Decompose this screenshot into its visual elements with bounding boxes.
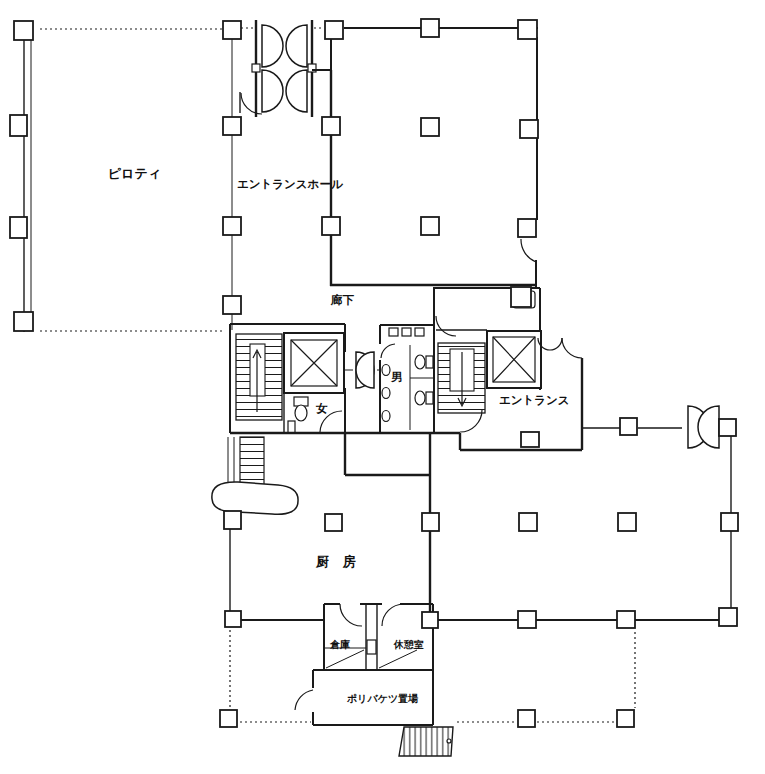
column xyxy=(421,118,439,136)
bucket-door-arc xyxy=(295,690,313,710)
stair-east xyxy=(438,343,485,413)
entrance-step-block xyxy=(521,432,539,447)
column xyxy=(14,312,33,331)
column xyxy=(223,296,241,314)
column xyxy=(618,513,636,531)
column xyxy=(721,513,738,531)
vestibule-door-leaf-icon xyxy=(286,25,307,67)
elevator-west xyxy=(284,333,344,393)
stair-handrail-post xyxy=(447,739,451,743)
column xyxy=(520,120,538,138)
column xyxy=(518,611,536,628)
stair-treads xyxy=(399,727,453,756)
label-storage: 倉庫 xyxy=(329,639,350,650)
wc-door-swing-arc xyxy=(381,344,395,358)
breakroom-door-arc xyxy=(382,604,404,626)
piloti-area: ピロティ xyxy=(24,29,232,332)
label-kitchen: 厨房 xyxy=(315,554,370,569)
door-jamb-block xyxy=(252,64,260,72)
wc-sink-icon xyxy=(288,421,295,433)
column xyxy=(224,511,241,529)
column xyxy=(617,710,634,727)
toilet-tank-icon xyxy=(426,392,433,404)
column xyxy=(617,611,635,628)
toilet-bowl-icon xyxy=(295,405,307,421)
label-bucket-storage: ポリバケツ置場 xyxy=(346,693,418,704)
column xyxy=(223,217,241,235)
hall-door-swing-arc xyxy=(241,93,262,114)
machine-room-door-arc xyxy=(436,316,456,336)
elevator-east xyxy=(487,331,541,388)
column xyxy=(518,219,536,237)
floor-plan-page: ピロティ エントランスホール 廊下 xyxy=(0,0,765,774)
stair-canopy-shape xyxy=(212,482,298,514)
urinal-icon xyxy=(382,411,390,422)
label-corridor: 廊下 xyxy=(330,293,355,307)
urinal-icon xyxy=(382,388,390,399)
toilet-bowl-icon xyxy=(415,355,425,369)
sink-icon xyxy=(402,328,411,336)
column xyxy=(325,21,343,39)
sink-icon xyxy=(389,328,398,336)
core-east xyxy=(434,288,541,432)
label-women: 女 xyxy=(315,401,328,415)
column xyxy=(719,608,737,626)
column xyxy=(220,710,237,727)
room-door-swing-arc xyxy=(521,239,536,262)
column xyxy=(223,117,241,135)
column xyxy=(518,710,535,727)
column xyxy=(519,513,537,531)
label-break-room: 休憩室 xyxy=(393,639,424,650)
entrance-hall: エントランスホール xyxy=(237,20,344,286)
corridor: 廊下 xyxy=(330,293,355,307)
upper-right-room xyxy=(330,28,538,288)
urinal-icon xyxy=(382,365,390,376)
vestibule-door-leaf-icon xyxy=(286,70,307,112)
floor-plan-drawing: ピロティ エントランスホール 廊下 xyxy=(0,0,765,774)
column xyxy=(223,21,241,39)
toilet-lobby-door xyxy=(345,352,380,388)
column xyxy=(322,117,340,135)
door-jamb-block xyxy=(719,419,736,436)
column xyxy=(620,418,637,435)
service-stair xyxy=(212,437,298,514)
vestibule-door-leaf-icon xyxy=(262,25,283,67)
column xyxy=(325,514,342,531)
mop-sink-icon xyxy=(367,640,376,654)
column xyxy=(225,611,241,627)
column xyxy=(14,21,33,40)
column xyxy=(422,513,439,531)
column xyxy=(10,115,27,136)
block-partitions xyxy=(366,604,377,670)
label-entrance: エントランス xyxy=(499,393,570,407)
label-piloti: ピロティ xyxy=(108,166,161,181)
toilet-tank-icon xyxy=(426,356,433,368)
label-men: 男 xyxy=(390,370,403,384)
label-entrance-hall: エントランスホール xyxy=(237,177,344,191)
column xyxy=(511,287,531,307)
toilet-bowl-icon xyxy=(415,391,425,405)
column xyxy=(421,19,439,37)
sink-icon xyxy=(415,328,424,336)
mens-toilet: 男 xyxy=(380,287,434,433)
stair-main-west xyxy=(236,334,282,420)
entry-arc-large xyxy=(562,338,582,358)
east-exterior-door xyxy=(688,406,736,448)
womens-toilet: 女 xyxy=(284,394,342,433)
column xyxy=(10,217,27,238)
column xyxy=(518,20,537,39)
storage-door-arc xyxy=(340,604,362,626)
core-west: 女 xyxy=(230,324,380,433)
column xyxy=(322,217,340,235)
column xyxy=(421,217,439,235)
vestibule-door-leaf-icon xyxy=(262,70,283,112)
column xyxy=(422,612,438,628)
exterior-stair xyxy=(399,727,453,756)
